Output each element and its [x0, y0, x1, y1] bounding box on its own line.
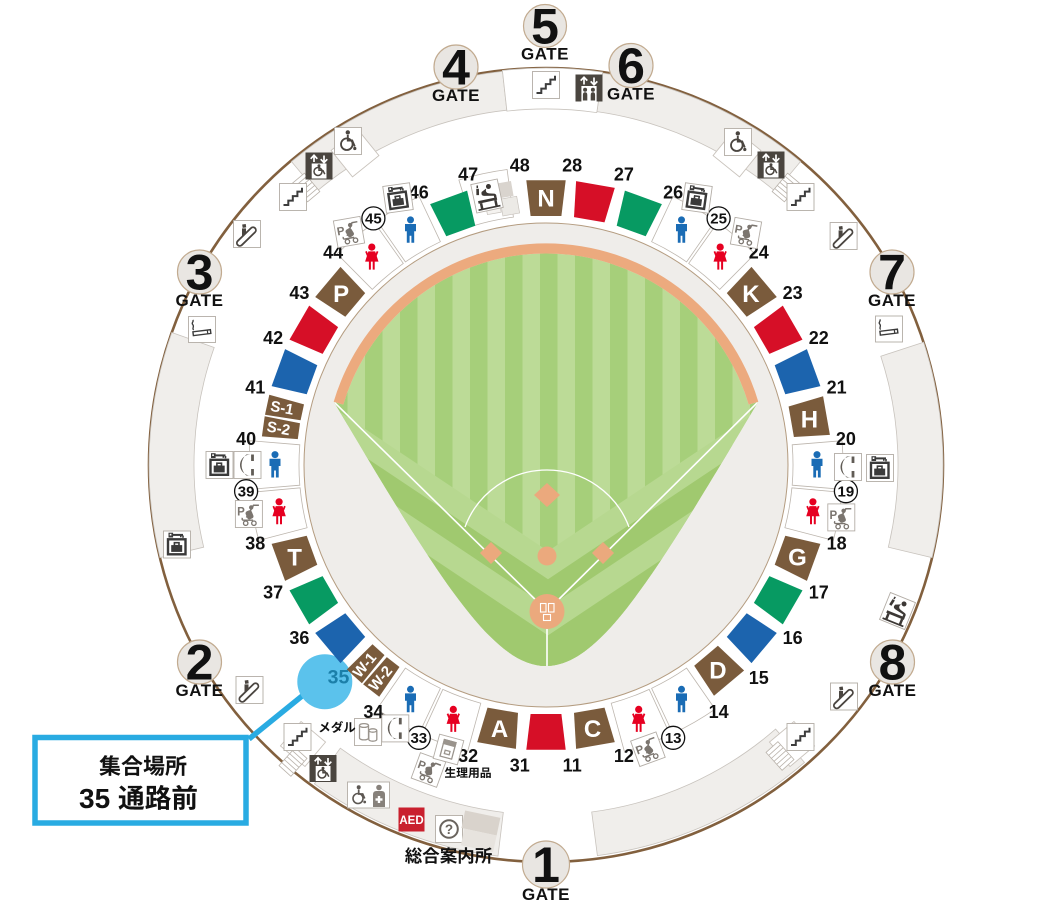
svg-text:T: T	[287, 544, 302, 571]
svg-text:43: 43	[289, 283, 309, 303]
svg-text:41: 41	[245, 378, 265, 398]
svg-text:38: 38	[245, 533, 265, 553]
svg-text:P: P	[333, 281, 349, 308]
svg-text:20: 20	[836, 429, 856, 449]
svg-text:GATE: GATE	[607, 85, 655, 104]
svg-text:48: 48	[510, 156, 530, 176]
svg-text:G: G	[788, 544, 807, 571]
svg-text:16: 16	[783, 628, 803, 648]
svg-text:22: 22	[809, 328, 829, 348]
svg-text:45: 45	[365, 211, 382, 228]
svg-text:27: 27	[614, 165, 634, 185]
svg-text:40: 40	[236, 429, 256, 449]
svg-text:13: 13	[665, 730, 682, 747]
svg-text:47: 47	[458, 165, 478, 185]
svg-text:C: C	[584, 716, 601, 743]
svg-text:19: 19	[838, 484, 855, 501]
svg-text:A: A	[491, 716, 508, 743]
svg-text:28: 28	[562, 156, 582, 176]
svg-text:GATE: GATE	[176, 681, 224, 700]
svg-text:21: 21	[827, 378, 847, 398]
svg-text:31: 31	[510, 755, 530, 775]
svg-text:39: 39	[238, 484, 255, 501]
svg-text:35: 35	[328, 667, 350, 689]
svg-text:35: 35	[79, 783, 110, 814]
svg-text:18: 18	[827, 533, 847, 553]
svg-text:GATE: GATE	[522, 885, 570, 903]
svg-text:K: K	[742, 281, 760, 308]
svg-text:GATE: GATE	[869, 681, 917, 700]
svg-text:14: 14	[709, 702, 729, 722]
svg-text:25: 25	[710, 211, 727, 228]
svg-text:N: N	[537, 185, 554, 212]
svg-text:GATE: GATE	[868, 291, 916, 310]
svg-text:GATE: GATE	[521, 45, 569, 64]
svg-text:42: 42	[263, 328, 283, 348]
svg-text:H: H	[801, 406, 818, 433]
svg-text:37: 37	[263, 583, 283, 603]
svg-text:12: 12	[614, 746, 634, 766]
svg-text:36: 36	[289, 628, 309, 648]
svg-text:GATE: GATE	[176, 291, 224, 310]
svg-text:11: 11	[563, 755, 582, 775]
svg-text:D: D	[709, 658, 726, 685]
svg-text:23: 23	[783, 283, 803, 303]
svg-text:26: 26	[663, 183, 683, 203]
svg-text:17: 17	[809, 583, 829, 603]
svg-text:GATE: GATE	[432, 86, 480, 105]
svg-text:33: 33	[410, 730, 427, 747]
svg-text:15: 15	[749, 668, 769, 688]
